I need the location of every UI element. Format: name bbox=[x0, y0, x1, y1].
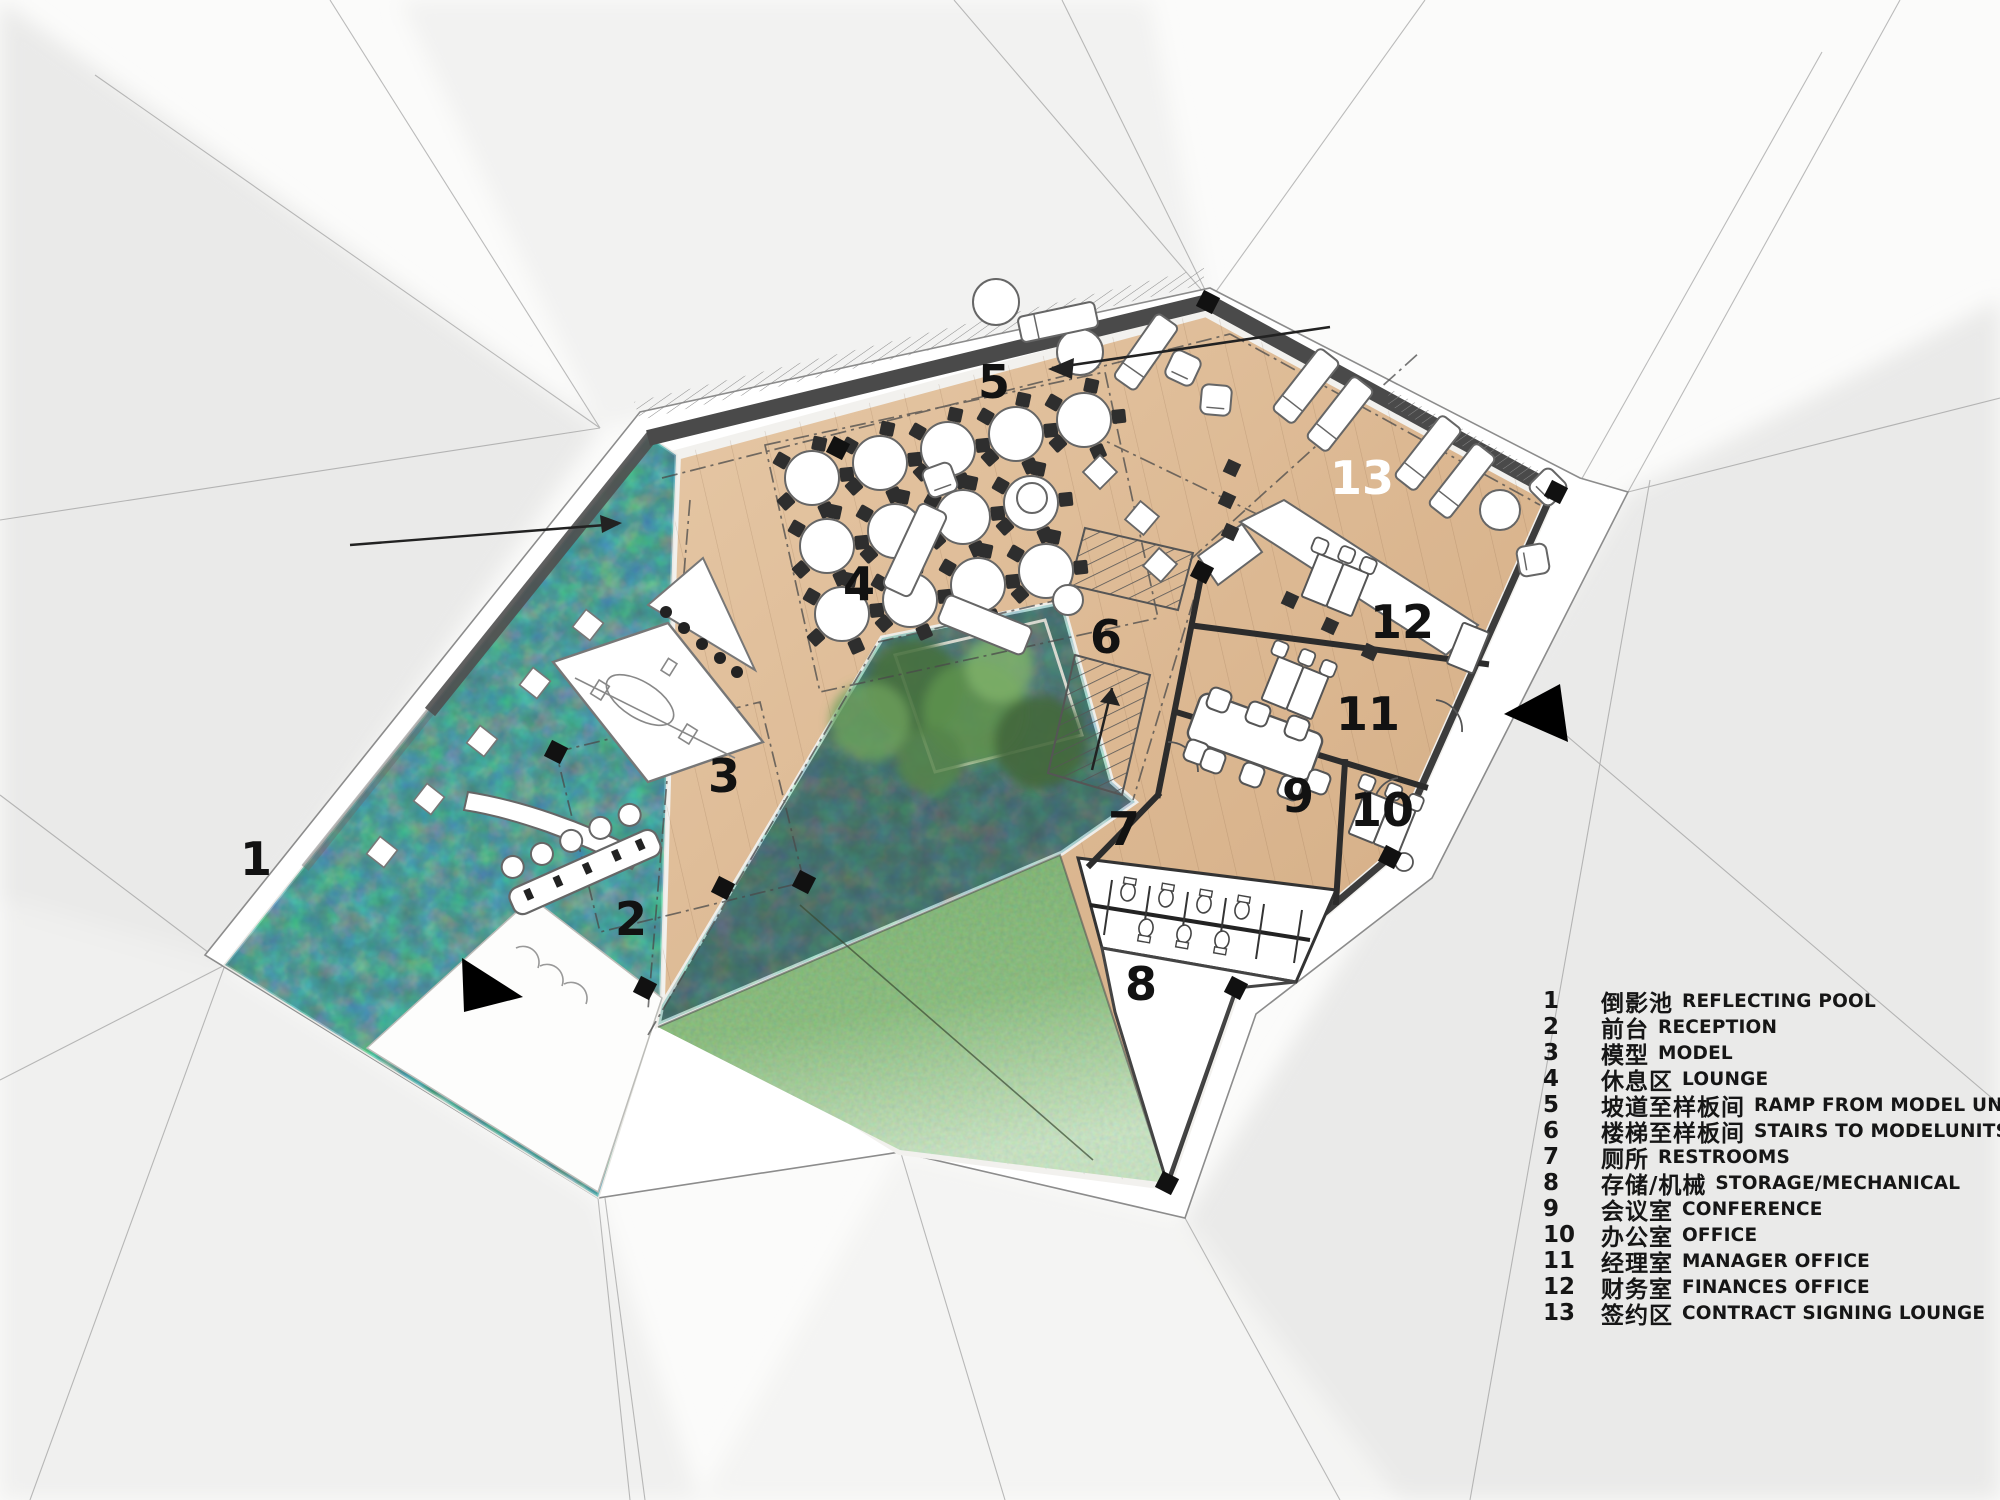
legend-num: 3 bbox=[1543, 1040, 1601, 1066]
area-label-4: 4 bbox=[843, 557, 875, 611]
legend-num: 12 bbox=[1543, 1274, 1601, 1300]
legend-num: 7 bbox=[1543, 1144, 1601, 1170]
area-label-2: 2 bbox=[615, 892, 647, 946]
legend-en: FINANCES OFFICE bbox=[1682, 1277, 1870, 1298]
legend-num: 2 bbox=[1543, 1014, 1601, 1040]
legend-num: 10 bbox=[1543, 1222, 1601, 1248]
area-label-9: 9 bbox=[1282, 769, 1314, 823]
legend-num: 11 bbox=[1543, 1248, 1601, 1274]
area-label-12: 12 bbox=[1370, 595, 1434, 649]
area-label-13: 13 bbox=[1330, 451, 1394, 505]
area-label-5: 5 bbox=[978, 355, 1010, 409]
area-label-8: 8 bbox=[1125, 957, 1157, 1011]
legend-num: 1 bbox=[1543, 988, 1601, 1014]
legend-num: 13 bbox=[1543, 1300, 1601, 1326]
area-label-1: 1 bbox=[240, 832, 272, 886]
legend-en: STORAGE/MECHANICAL bbox=[1715, 1173, 1960, 1194]
area-label-3: 3 bbox=[708, 749, 740, 803]
floor-plan-page: 1 2 3 4 5 6 7 8 9 10 11 12 13 1倒影池REFLEC… bbox=[0, 0, 2000, 1500]
area-label-10: 10 bbox=[1350, 783, 1414, 837]
legend-num: 8 bbox=[1543, 1170, 1601, 1196]
legend-en: CONTRACT SIGNING LOUNGE bbox=[1682, 1303, 1985, 1324]
area-label-11: 11 bbox=[1336, 687, 1400, 741]
legend-en: STAIRS TO MODELUNITS bbox=[1754, 1121, 2000, 1142]
legend-en: LOUNGE bbox=[1682, 1069, 1768, 1090]
legend-en: RESTROOMS bbox=[1658, 1147, 1790, 1168]
legend-num: 6 bbox=[1543, 1118, 1601, 1144]
legend-en: OFFICE bbox=[1682, 1225, 1757, 1246]
area-label-7: 7 bbox=[1108, 802, 1140, 856]
legend-num: 9 bbox=[1543, 1196, 1601, 1222]
legend-en: MANAGER OFFICE bbox=[1682, 1251, 1870, 1272]
legend-en: MODEL bbox=[1658, 1043, 1733, 1064]
legend-row-13: 13签约区CONTRACT SIGNING LOUNGE bbox=[1543, 1300, 1993, 1326]
legend-en: RECEPTION bbox=[1658, 1017, 1777, 1038]
legend-en: REFLECTING POOL bbox=[1682, 991, 1876, 1012]
legend-num: 5 bbox=[1543, 1092, 1601, 1118]
legend-en: CONFERENCE bbox=[1682, 1199, 1823, 1220]
legend-zh: 签约区 bbox=[1601, 1296, 1673, 1330]
legend-en: RAMP FROM MODEL UNITS bbox=[1754, 1095, 2000, 1116]
legend: 1倒影池REFLECTING POOL 2前台RECEPTION 3模型MODE… bbox=[1543, 988, 1993, 1326]
area-label-6: 6 bbox=[1090, 610, 1122, 664]
legend-num: 4 bbox=[1543, 1066, 1601, 1092]
